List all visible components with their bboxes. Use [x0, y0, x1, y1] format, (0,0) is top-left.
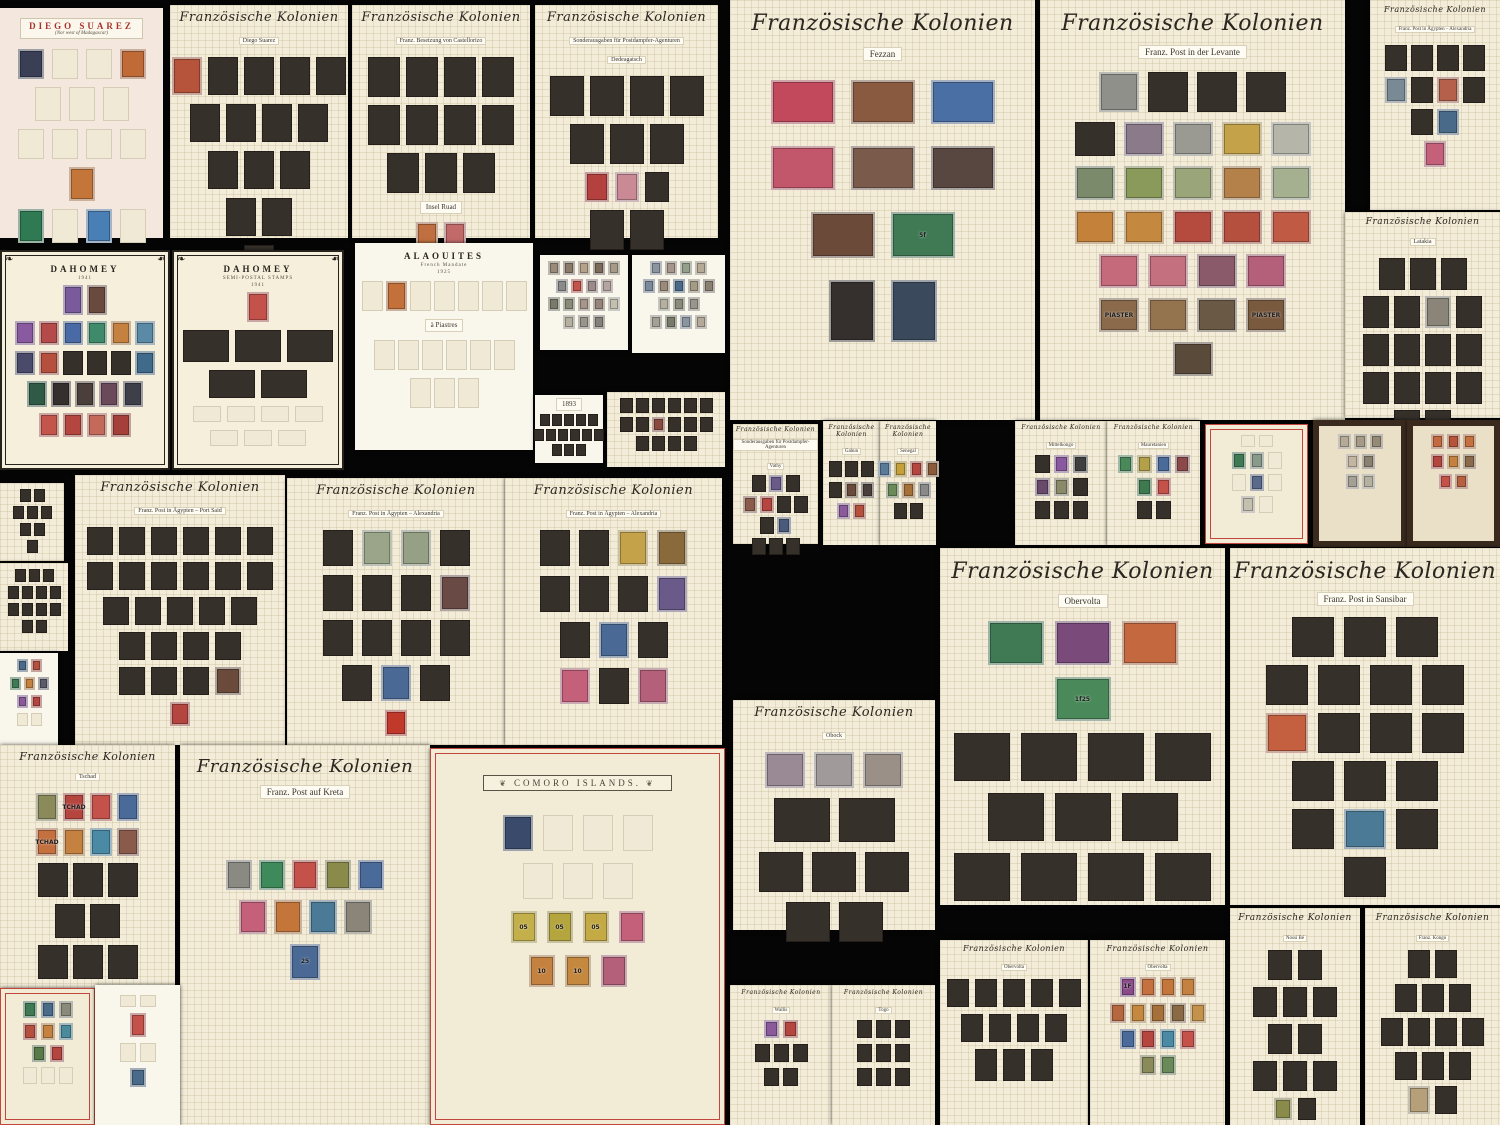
- stamp-mount: [1298, 950, 1322, 980]
- stamp-mount: [323, 575, 353, 611]
- stamp-mount: [1394, 296, 1420, 328]
- stamp-row: [355, 281, 533, 311]
- stamp-mount: [1425, 334, 1451, 366]
- album-page-fezzan: Französische Kolonien Fezzan 5f: [730, 0, 1035, 420]
- stamp: [657, 530, 687, 566]
- album-cell: [434, 281, 455, 311]
- stamp: [292, 860, 318, 890]
- stamp: [1073, 455, 1088, 473]
- album-page-approval-left: [540, 255, 628, 350]
- stamp-mount: [1370, 665, 1412, 705]
- stamp-mount: [1283, 987, 1307, 1017]
- stamp-mount: [401, 575, 431, 611]
- album-page-alexandria-small: Französische Kolonien Franz. Post in Ägy…: [1370, 0, 1500, 210]
- stamp-mount: [1396, 761, 1438, 801]
- page-header: Französische Kolonien Obervolta: [940, 940, 1088, 973]
- stamp-mount: [1122, 793, 1178, 841]
- stamp-row: [1230, 987, 1360, 1017]
- stamp: [1148, 254, 1188, 288]
- stamp: [585, 172, 609, 202]
- stamp: [1124, 210, 1164, 244]
- stamp-grid: [1319, 426, 1401, 489]
- stamp-row: [1090, 1055, 1225, 1075]
- album-page-diego-suarez-scott: DIEGO SUAREZ (Nor west of Madagascar): [0, 8, 163, 238]
- stamp-mount: [638, 622, 668, 658]
- album-page-castellorizo: Französische Kolonien Franz. Besetzung v…: [352, 5, 530, 238]
- stamp-mount: [1456, 372, 1482, 404]
- stamp-grid: 1893: [535, 395, 603, 456]
- stamp-row: à Piastres: [355, 319, 533, 332]
- stamp-row: [940, 853, 1225, 901]
- stamp-mount: [620, 417, 633, 432]
- album-cell: [35, 87, 61, 121]
- stamp-row: [1, 1001, 94, 1018]
- page-subtitle: (Nor west of Madagascar): [29, 31, 134, 36]
- stamp-mount: [1283, 1061, 1307, 1091]
- album-panel: [1319, 426, 1401, 541]
- stamp-row: [95, 1068, 180, 1087]
- stamp-row: [1015, 478, 1107, 496]
- stamp-row: 050505: [431, 911, 724, 943]
- stamp-mount: [1363, 372, 1389, 404]
- page-subtitle: Franz. Post in der Levante: [1138, 45, 1247, 59]
- stamp: [1124, 166, 1164, 200]
- stamp-mount: [111, 351, 131, 375]
- stamp: [1137, 455, 1152, 473]
- stamp: [743, 496, 757, 513]
- stamp: [39, 321, 59, 345]
- stamp-row: [940, 1014, 1088, 1042]
- album-page-franz-kongo: Französische Kolonien Franz. Kongo: [1365, 908, 1500, 1125]
- stamp-grid: [880, 457, 936, 519]
- stamp-mount: [793, 1044, 808, 1062]
- stamp-row: [1230, 665, 1500, 705]
- stamp-mount: [119, 527, 145, 555]
- page-header: Französische Kolonien Togo: [832, 985, 935, 1016]
- stamp-mount: [620, 398, 633, 413]
- stamp: [688, 297, 700, 311]
- section-label: Insel Ruad: [420, 201, 462, 214]
- stamp-mount: [857, 1020, 872, 1038]
- stamp-grid: [540, 255, 628, 329]
- stamp-mount: [590, 76, 624, 116]
- album-page-brown-right: [1407, 420, 1500, 547]
- stamp-mount: [650, 124, 684, 164]
- page-header: Französische Kolonien Franz. Post in der…: [1040, 0, 1345, 60]
- stamp-row: [733, 517, 818, 534]
- stamp: [578, 297, 590, 311]
- stamp-row: [0, 659, 58, 672]
- stamp: [1170, 1003, 1186, 1023]
- stamp-mount: [1292, 809, 1334, 849]
- stamp-row: [0, 677, 58, 690]
- stamp-mount: [599, 668, 629, 704]
- stamp-mount: [151, 632, 177, 660]
- stamp: [673, 279, 685, 293]
- stamp-mount: [1456, 334, 1482, 366]
- stamp-row: [1, 1023, 94, 1040]
- page-subtitle: Franz. Post in Ägypten – Port Said: [134, 507, 226, 515]
- stamp-row: [287, 665, 505, 701]
- stamp: [593, 315, 605, 329]
- stamp-mount: [954, 733, 1010, 781]
- stamp: [695, 315, 707, 329]
- stamp-mount: [38, 863, 68, 897]
- stamp: [1431, 454, 1444, 469]
- stamp-mount: [783, 1068, 798, 1086]
- stamp-mount: [594, 429, 604, 441]
- stamp-grid: [832, 1016, 935, 1086]
- stamp-row: [1365, 1086, 1500, 1114]
- album-page-tschad: Französische Kolonien Tschad TCHADTCHAD: [0, 745, 175, 990]
- stamp-mount: [1394, 372, 1420, 404]
- stamp-mount: [829, 482, 842, 498]
- stamp-row: [535, 414, 603, 426]
- stamp-grid: 1f25: [940, 609, 1225, 901]
- stamp-grid: [1370, 35, 1500, 167]
- stamp-mount: [482, 57, 514, 97]
- page-header: Französische Kolonien Mauretanien: [1107, 421, 1200, 451]
- stamp-mount: [588, 414, 598, 426]
- stamp-mount: [1395, 1052, 1417, 1080]
- stamp-row: [540, 279, 628, 293]
- stamp-mount: [36, 586, 47, 599]
- album-cell: [1259, 435, 1273, 447]
- stamp-mount: [151, 562, 177, 590]
- stamp: [18, 49, 44, 79]
- album-cell: [140, 995, 156, 1007]
- stamp-mount: [1054, 501, 1069, 519]
- stamp: [87, 321, 107, 345]
- stamp-row: [0, 620, 68, 633]
- stamp-row: [1015, 455, 1107, 473]
- stamp: [563, 261, 575, 275]
- album-cell: [278, 430, 306, 446]
- stamp: [259, 860, 285, 890]
- page-header: DAHOMEY SEMI-POSTAL STAMPS 1941: [174, 252, 342, 288]
- stamp-mount: [36, 620, 47, 633]
- stamp-mount: [552, 414, 562, 426]
- stamp-row: [730, 80, 1035, 124]
- stamp: [891, 280, 937, 342]
- album-page-sansibar: Französische Kolonien Franz. Post in San…: [1230, 548, 1500, 905]
- stamp-grid: [1206, 425, 1307, 513]
- stamp-grid: [0, 563, 68, 633]
- stamp: [548, 261, 560, 275]
- page-subtitle: Diego Suarez: [239, 37, 280, 45]
- stamp-row: [1090, 1003, 1225, 1023]
- album-cell: [458, 281, 479, 311]
- album-cell: [227, 406, 255, 422]
- stamp-row: [1230, 1061, 1360, 1091]
- album-page-dahomey-1: DAHOMEY 1941: [0, 250, 170, 470]
- stamp: [1362, 454, 1375, 469]
- page-subtitle: Nossi Bé: [1283, 935, 1307, 942]
- stamp-row: [170, 151, 348, 189]
- page-subtitle: Mittelkongo: [1046, 442, 1077, 449]
- album-page-obervolta-small-right: Französische Kolonien Obervolta 1F: [1090, 940, 1225, 1125]
- stamp-mount: [50, 586, 61, 599]
- stamp-mount: [630, 76, 664, 116]
- page-title-banner: ❦COMORO ISLANDS.❦: [483, 775, 671, 791]
- stamp: [63, 413, 83, 437]
- album-cell: [563, 863, 593, 899]
- album-cell: [434, 378, 455, 408]
- stamp: [643, 279, 655, 293]
- album-cell: [210, 430, 238, 446]
- stamp-mount: [786, 538, 800, 555]
- stamp: 25: [290, 944, 320, 980]
- stamp-mount: [1021, 853, 1077, 901]
- album-cell: [398, 340, 419, 370]
- stamp-mount: [876, 1044, 891, 1062]
- stamp: [1099, 72, 1139, 112]
- page-subtitle-2: Vathy: [767, 463, 785, 470]
- stamp-row: [75, 562, 285, 590]
- stamp-row: [823, 461, 880, 477]
- stamp: [170, 702, 190, 726]
- stamp-row: [0, 209, 163, 243]
- stamp-mount: [1396, 617, 1438, 657]
- page-title: Französische Kolonien: [1230, 554, 1500, 584]
- stamp-mount: [226, 104, 256, 142]
- stamp: [657, 576, 687, 612]
- stamp-overprint: TCHAD: [36, 828, 58, 856]
- stamp-row: [0, 695, 58, 708]
- stamp-row: [170, 198, 348, 236]
- stamp: [1173, 166, 1213, 200]
- album-page-tiny-mounts-a: 1893: [535, 395, 603, 463]
- stamp-grid: 0505051010: [431, 791, 724, 987]
- stamp-row: [1413, 434, 1494, 449]
- stamp-grid: [0, 483, 64, 553]
- album-page-tiny-mounts-b: [607, 392, 725, 467]
- album-cell: [59, 1067, 73, 1084]
- stamp-mount: [1318, 713, 1360, 753]
- stamp: [878, 461, 891, 477]
- stamp-grid: [0, 39, 163, 271]
- page-title: Französische Kolonien: [940, 945, 1088, 954]
- stamp-row: [1206, 474, 1307, 491]
- stamp: [24, 677, 35, 690]
- stamp-mount: [482, 105, 514, 145]
- stamp-mount: [247, 562, 273, 590]
- stamp-row: [880, 482, 936, 498]
- stamp-mount: [1059, 979, 1081, 1007]
- album-cell: [1259, 496, 1273, 513]
- stamp: [17, 659, 28, 672]
- section-label: 1893: [556, 398, 582, 411]
- stamp: [1346, 454, 1359, 469]
- page-header: ❦COMORO ISLANDS.❦: [431, 749, 724, 791]
- stamp-mount: [636, 417, 649, 432]
- page-subtitle: Obervolta: [1001, 964, 1027, 971]
- stamp-row: [0, 523, 64, 536]
- album-cell: [482, 281, 503, 311]
- stamp: [86, 209, 112, 243]
- stamp-mount: [570, 124, 604, 164]
- stamp-mount: [1017, 1014, 1039, 1042]
- stamp-mount: [90, 904, 120, 938]
- stamp-overprint: 1F: [1120, 977, 1136, 997]
- stamp-row: [1370, 45, 1500, 71]
- stamp-mount: [961, 1014, 983, 1042]
- stamp-mount: [1435, 1086, 1457, 1114]
- stamp-overprint: TCHAD: [63, 793, 85, 821]
- stamp-mount: [420, 665, 450, 701]
- album-page-mid-c-right: Französische Kolonien Mauretanien: [1107, 421, 1200, 545]
- stamp-overprint: 05: [547, 911, 573, 943]
- stamp-row: [170, 57, 348, 95]
- stamp-mount: [1395, 984, 1417, 1012]
- stamp: [1180, 977, 1196, 997]
- stamp-grid: [1413, 426, 1494, 489]
- stamp: [703, 279, 715, 293]
- stamp-row: [431, 863, 724, 899]
- stamp: [1354, 434, 1367, 449]
- stamp-mount: [387, 153, 419, 193]
- stamp-mount: [87, 351, 107, 375]
- stamp-row: TCHAD: [0, 828, 175, 856]
- stamp: [1344, 809, 1386, 849]
- stamp: [63, 321, 83, 345]
- stamp: [135, 351, 155, 375]
- stamp: [274, 900, 302, 934]
- stamp-row: [75, 667, 285, 695]
- stamp-mount: [323, 530, 353, 566]
- stamp: [593, 261, 605, 275]
- page-subtitle: Franz. Post in Ägypten – Alexandria: [1395, 26, 1474, 33]
- album-cell: [120, 995, 136, 1007]
- stamp: [1140, 1029, 1156, 1049]
- stamp-row: [1319, 454, 1401, 469]
- stamp-mount: [425, 153, 457, 193]
- stamp-mount: [1292, 761, 1334, 801]
- stamp-row: [352, 57, 530, 97]
- stamp-mount: [1268, 950, 1292, 980]
- stamp: [1120, 1029, 1136, 1049]
- page-title: Französische Kolonien: [1107, 425, 1200, 432]
- page-title: DAHOMEY: [2, 264, 168, 274]
- stamp-grid: PIASTERPIASTER: [1040, 60, 1345, 376]
- stamp-mount: [280, 57, 310, 95]
- stamp-grid: [1230, 944, 1360, 1120]
- stamp-overprint: PIASTER: [1246, 298, 1286, 332]
- stamp-mount: [1381, 1018, 1403, 1046]
- stamp-row: [1230, 617, 1500, 657]
- album-cell: [18, 129, 44, 159]
- stamp: [1222, 166, 1262, 200]
- stamp-mount: [1298, 1098, 1316, 1120]
- stamp-mount: [812, 852, 856, 892]
- album-page-alexandria-left: Französische Kolonien Franz. Post in Ägy…: [287, 478, 505, 745]
- stamp-mount: [954, 853, 1010, 901]
- stamp: [1463, 454, 1476, 469]
- page-header: Französische Kolonien Franz. Besetzung v…: [352, 5, 530, 47]
- stamp: [652, 417, 665, 432]
- stamp-mount: [262, 104, 292, 142]
- stamp: [560, 668, 590, 704]
- page-title: Französische Kolonien: [0, 751, 175, 763]
- stamp-mount: [895, 1068, 910, 1086]
- page-title: Französische Kolonien: [733, 427, 818, 434]
- stamp-mount: [1344, 617, 1386, 657]
- stamp: [1035, 478, 1050, 496]
- stamp-row: [535, 444, 603, 456]
- stamp-mount: [684, 398, 697, 413]
- stamp: [931, 80, 995, 124]
- stamp-mount: [8, 603, 19, 616]
- stamp-mount: [1003, 1049, 1025, 1081]
- stamp: [665, 315, 677, 329]
- stamp-mount: [610, 124, 644, 164]
- stamp: [1271, 166, 1311, 200]
- stamp: [247, 292, 269, 322]
- page-header: Französische Kolonien Obervolta: [1090, 940, 1225, 973]
- page-subtitle: Sonderausgaben für Postdampfer-Agenturen: [733, 439, 818, 451]
- album-cell: [103, 87, 129, 121]
- stamp: [1455, 474, 1468, 489]
- stamp-row: [2, 381, 168, 407]
- stamp-row: [733, 752, 935, 788]
- stamp-row: [0, 945, 175, 979]
- album-page-bottom-left: Französische Kolonien Wallis: [730, 985, 832, 1125]
- stamp-mount: [103, 597, 129, 625]
- stamp-grid: TCHADTCHAD: [0, 783, 175, 979]
- stamp-mount: [215, 562, 241, 590]
- stamp-row: [540, 297, 628, 311]
- stamp-row: [1107, 478, 1200, 496]
- stamp: [771, 80, 835, 124]
- stamp: [861, 482, 874, 498]
- stamp: [41, 1023, 55, 1040]
- stamp-row: 1F: [1090, 977, 1225, 997]
- album-cell: [41, 1067, 55, 1084]
- album-page-comoro: ❦COMORO ISLANDS.❦ 0505051010: [430, 748, 725, 1125]
- stamp: [1250, 474, 1264, 491]
- stamp-row: [170, 104, 348, 142]
- stamp: [111, 321, 131, 345]
- stamp-mount: [1318, 665, 1360, 705]
- stamp-grid: [733, 742, 935, 942]
- stamp: [401, 530, 431, 566]
- stamp-row: [1365, 1018, 1500, 1046]
- stamp-mount: [235, 330, 281, 362]
- album-cell: [86, 49, 112, 79]
- stamp-mount: [55, 904, 85, 938]
- stamp-row: [0, 489, 64, 502]
- stamp-mount: [1463, 77, 1485, 103]
- stamp: 10: [529, 955, 555, 987]
- stamp-row: [733, 538, 818, 555]
- stamp-mount: [558, 429, 568, 441]
- stamp: [886, 482, 899, 498]
- stamp-mount: [1385, 45, 1407, 71]
- stamp: [59, 1001, 73, 1018]
- stamp-row: [880, 461, 936, 477]
- stamp-mount: [208, 57, 238, 95]
- stamp-mount: [463, 153, 495, 193]
- stamp-overprint: 10: [565, 955, 591, 987]
- stamp-mount: [444, 57, 476, 97]
- stamp-row: [95, 1013, 180, 1037]
- stamp-row: [174, 430, 342, 446]
- stamp-row: [1206, 496, 1307, 513]
- stamp-mount: [579, 530, 609, 566]
- stamp: [1148, 298, 1188, 332]
- stamp-mount: [43, 569, 54, 582]
- stamp: [31, 659, 42, 672]
